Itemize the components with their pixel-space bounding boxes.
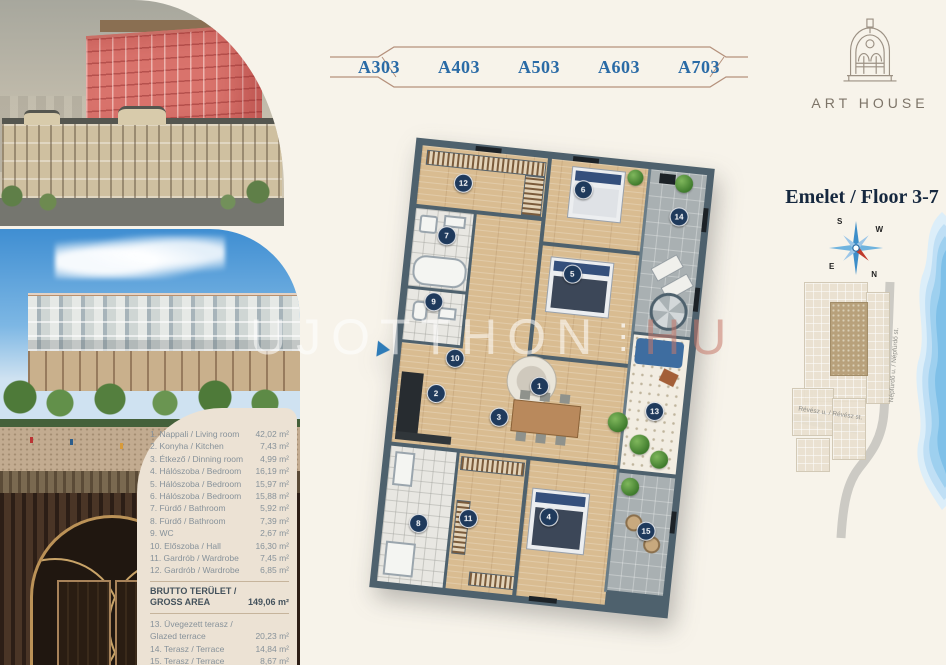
floor-title: Emelet / Floor 3-7 <box>782 186 942 209</box>
area-row-gross: BRUTTO TERÜLET / GROSS AREA149,06 m² <box>150 586 289 609</box>
terrace-sofa <box>634 338 684 369</box>
bath-counter <box>392 451 415 487</box>
room-label: 1. Nappali / Living room <box>150 428 239 440</box>
compass-north-label: N <box>871 270 877 279</box>
danube-river-graphic <box>902 208 946 514</box>
art-house-logo: ART HOUSE <box>798 12 942 111</box>
logo-text: ART HOUSE <box>798 95 942 111</box>
area-table: 1. Nappali / Living room42,02 m²2. Konyh… <box>150 428 289 665</box>
room-area: 15,88 m² <box>255 490 289 502</box>
area-row: 1. Nappali / Living room42,02 m² <box>150 428 289 440</box>
room-label: 2. Konyha / Kitchen <box>150 440 224 452</box>
room-area: 7,39 m² <box>260 515 289 527</box>
bed-room4 <box>526 488 590 556</box>
site-block <box>796 438 830 472</box>
room-area: 15,97 m² <box>255 478 289 490</box>
photo-aerial-render <box>0 0 284 226</box>
room-label: BRUTTO TERÜLET / GROSS AREA <box>150 586 244 609</box>
room-area: 7,43 m² <box>260 440 289 452</box>
room-label: 7. Fürdő / Bathroom <box>150 502 226 514</box>
compass-east-label: E <box>829 262 834 271</box>
bed-room5 <box>545 256 615 318</box>
tab-a503[interactable]: A503 <box>518 57 560 78</box>
room-label: 14. Terasz / Terrace <box>150 643 224 655</box>
arch-window-icon <box>830 12 910 88</box>
room-label: 9. WC <box>150 527 174 539</box>
room-label: 13. Üvegezett terasz / Glazed terrace <box>150 618 244 643</box>
door-leaf <box>57 580 111 665</box>
area-row: 6. Hálószoba / Bedroom15,88 m² <box>150 490 289 502</box>
area-row: 13. Üvegezett terasz / Glazed terrace20,… <box>150 618 289 643</box>
room-area: 42,02 m² <box>255 428 289 440</box>
area-rows-terrace: 13. Üvegezett terasz / Glazed terrace20,… <box>150 618 289 665</box>
room-label: 8. Fürdő / Bathroom <box>150 515 226 527</box>
area-rows-main: 1. Nappali / Living room42,02 m²2. Konyh… <box>150 428 289 577</box>
compass-south-label: S <box>837 217 842 226</box>
photo-trees <box>0 176 284 216</box>
window <box>701 208 708 232</box>
area-row: 11. Gardrób / Wardrobe7,45 m² <box>150 552 289 564</box>
washer <box>419 214 439 234</box>
room-area: 6,85 m² <box>260 564 289 576</box>
dining-chairs <box>520 390 531 400</box>
room-area: 149,06 m² <box>248 597 289 609</box>
room-area: 20,23 m² <box>255 630 289 642</box>
area-row: 5. Hálószoba / Bedroom15,97 m² <box>150 478 289 490</box>
site-block <box>866 292 890 404</box>
area-row: 12. Gardrób / Wardrobe6,85 m² <box>150 564 289 576</box>
entrance-arrow-icon <box>376 341 391 358</box>
room-label: 4. Hálószoba / Bedroom <box>150 465 241 477</box>
area-row: 2. Konyha / Kitchen7,43 m² <box>150 440 289 452</box>
area-row: 8. Fürdő / Bathroom7,39 m² <box>150 515 289 527</box>
area-row: 14. Terasz / Terrace14,84 m² <box>150 643 289 655</box>
compass-rose: S W E N <box>826 218 886 278</box>
compass-west-label: W <box>875 225 883 234</box>
room-label: 15. Terasz / Terrace <box>150 655 224 665</box>
room-area: 14,84 m² <box>255 643 289 655</box>
area-row: 9. WC2,67 m² <box>150 527 289 539</box>
photo-pediment <box>118 106 166 125</box>
room-label: 3. Étkező / Dinning room <box>150 453 243 465</box>
room-area: 2,67 m² <box>260 527 289 539</box>
room-area: 16,19 m² <box>255 465 289 477</box>
tab-a603[interactable]: A603 <box>598 57 640 78</box>
room-area: 8,67 m² <box>260 655 289 665</box>
floor-plan: 123456789101112131415 <box>369 138 715 619</box>
area-row: BRUTTO TERÜLET / GROSS AREA149,06 m² <box>150 586 289 609</box>
window <box>693 288 700 312</box>
photo-building-floor-lines <box>28 293 300 351</box>
room-label: 11. Gardrób / Wardrobe <box>150 552 239 564</box>
photo-clouds <box>55 235 225 279</box>
room-label: 6. Hálószoba / Bedroom <box>150 490 241 502</box>
planter <box>659 173 676 185</box>
sink <box>438 307 457 321</box>
window <box>669 511 676 533</box>
apartment-selector: A303A403A503A603A703 <box>330 42 748 92</box>
room-area: 16,30 m² <box>255 540 289 552</box>
area-row: 15. Terasz / Terrace8,67 m² <box>150 655 289 665</box>
site-block-highlighted <box>830 302 868 376</box>
area-row: 7. Fürdő / Bathroom5,92 m² <box>150 502 289 514</box>
photo-people <box>30 437 33 443</box>
area-row: 4. Hálószoba / Bedroom16,19 m² <box>150 465 289 477</box>
wardrobe-unit <box>521 175 545 217</box>
shower <box>383 541 416 578</box>
photo-pediment <box>24 110 60 125</box>
area-row: 10. Előszoba / Hall16,30 m² <box>150 540 289 552</box>
table-separator <box>150 613 289 614</box>
tab-a303[interactable]: A303 <box>358 57 400 78</box>
area-table-panel: 1. Nappali / Living room42,02 m²2. Konyh… <box>137 408 297 665</box>
room-area: 5,92 m² <box>260 502 289 514</box>
floor-tabs: A303A403A503A603A703 <box>330 42 748 92</box>
site-block <box>832 398 866 460</box>
room-area: 7,45 m² <box>260 552 289 564</box>
table-separator <box>150 581 289 582</box>
tab-a703[interactable]: A703 <box>678 57 720 78</box>
bathtub <box>411 254 468 289</box>
area-row: 3. Étkező / Dinning room4,99 m² <box>150 453 289 465</box>
tab-a403[interactable]: A403 <box>438 57 480 78</box>
room-area: 4,99 m² <box>260 453 289 465</box>
room-label: 12. Gardrób / Wardrobe <box>150 564 239 576</box>
brochure-page: A303A403A503A603A703 ART HOUSE Emelet / … <box>0 0 946 665</box>
room-label: 10. Előszoba / Hall <box>150 540 221 552</box>
room-label: 5. Hálószoba / Bedroom <box>150 478 241 490</box>
